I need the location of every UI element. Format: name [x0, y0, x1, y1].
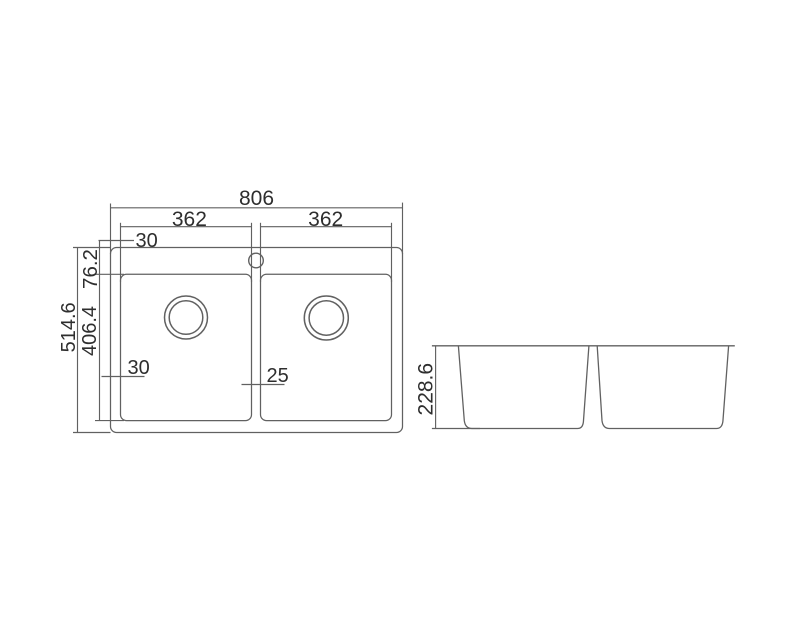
svg-text:362: 362: [172, 208, 207, 231]
svg-text:76.2: 76.2: [79, 249, 102, 289]
svg-text:30: 30: [128, 357, 150, 379]
svg-text:228.6: 228.6: [415, 363, 438, 416]
svg-text:514.6: 514.6: [58, 302, 80, 352]
svg-text:362: 362: [308, 208, 343, 231]
svg-text:806: 806: [239, 187, 274, 210]
svg-text:25: 25: [267, 365, 289, 387]
svg-text:406.4: 406.4: [79, 306, 101, 356]
svg-text:30: 30: [136, 230, 158, 252]
